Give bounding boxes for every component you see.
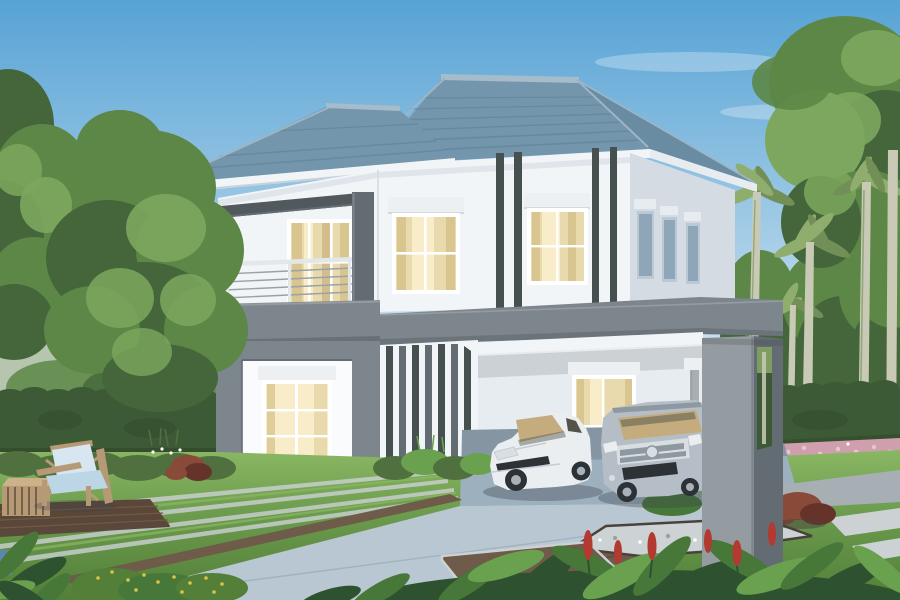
- entry-window: [258, 366, 336, 466]
- suv-emblem: [646, 446, 658, 458]
- balcony-window: [287, 219, 353, 309]
- silver-suv: [601, 400, 712, 502]
- window-b: [524, 193, 590, 285]
- house-exterior-rendering: [0, 0, 900, 600]
- window-a: [388, 197, 464, 294]
- window-portal-bar: [352, 192, 374, 312]
- meter-box: [684, 358, 703, 370]
- pillar-slot: [757, 347, 772, 450]
